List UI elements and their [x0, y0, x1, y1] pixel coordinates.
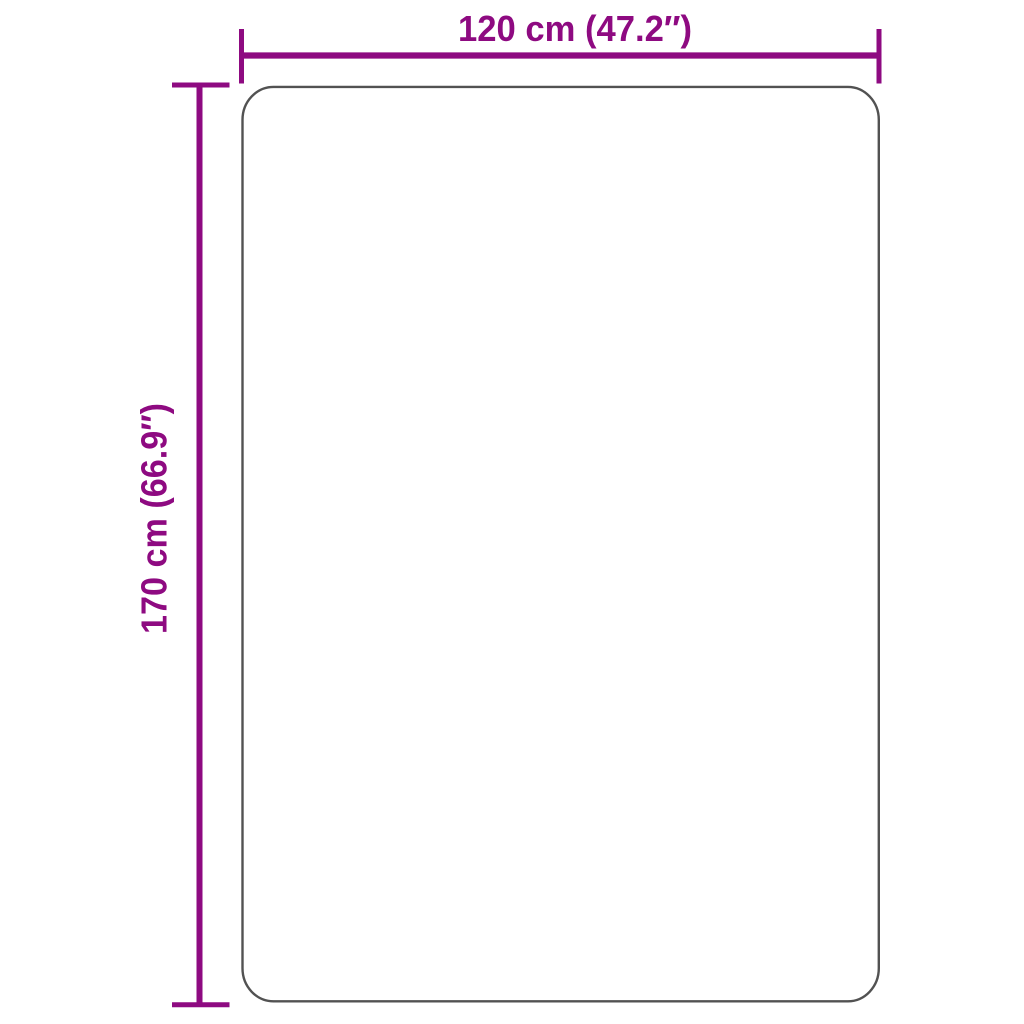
svg-text:120 cm (47.2″): 120 cm (47.2″) — [458, 8, 692, 49]
svg-text:170 cm (66.9″): 170 cm (66.9″) — [134, 403, 175, 634]
